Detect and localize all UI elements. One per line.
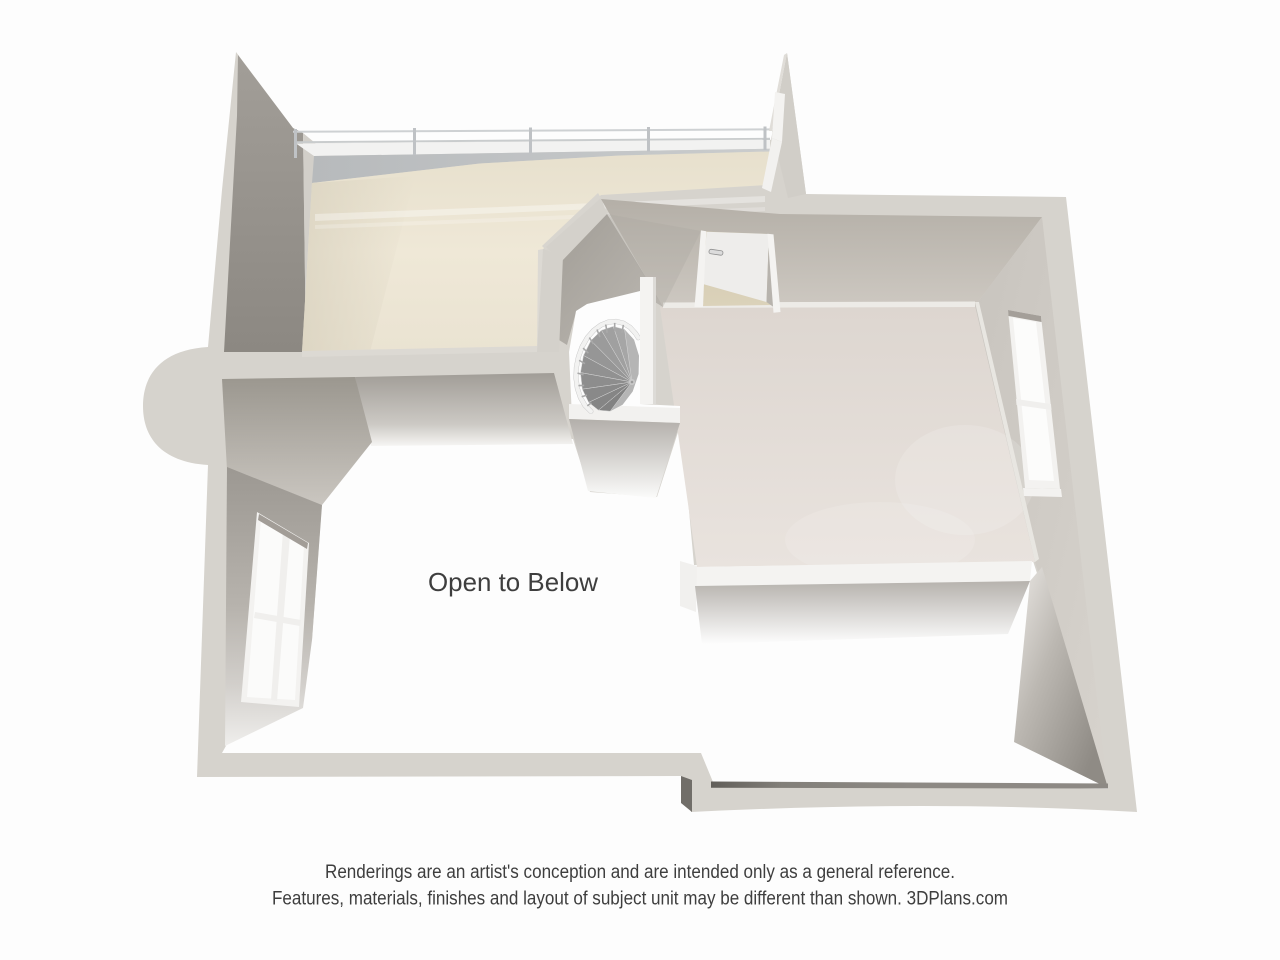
svg-text:Features, materials, finishes: Features, materials, finishes and layout… (272, 889, 1008, 910)
svg-text:Renderings are an artist's con: Renderings are an artist's conception an… (325, 862, 955, 883)
svg-text:Open to Below: Open to Below (428, 567, 598, 597)
